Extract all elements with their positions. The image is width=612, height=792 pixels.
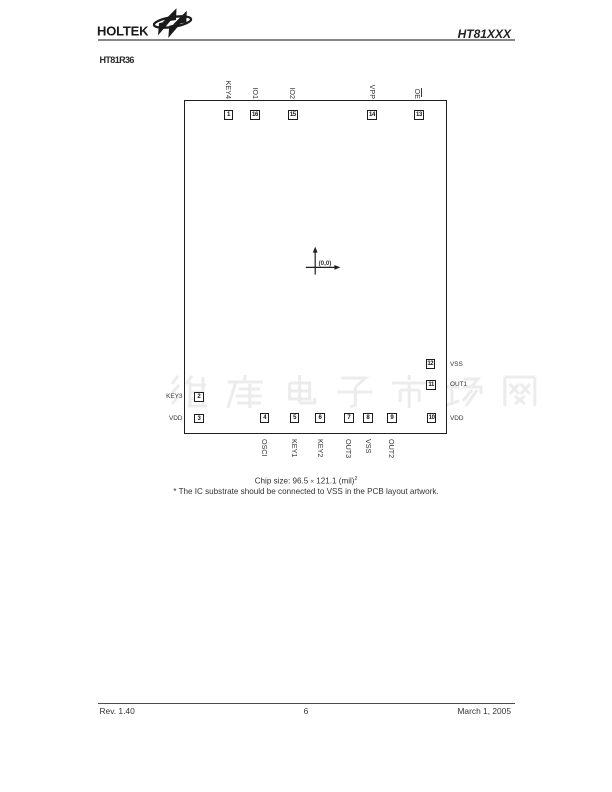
- svg-text:(0,0): (0,0): [319, 260, 332, 267]
